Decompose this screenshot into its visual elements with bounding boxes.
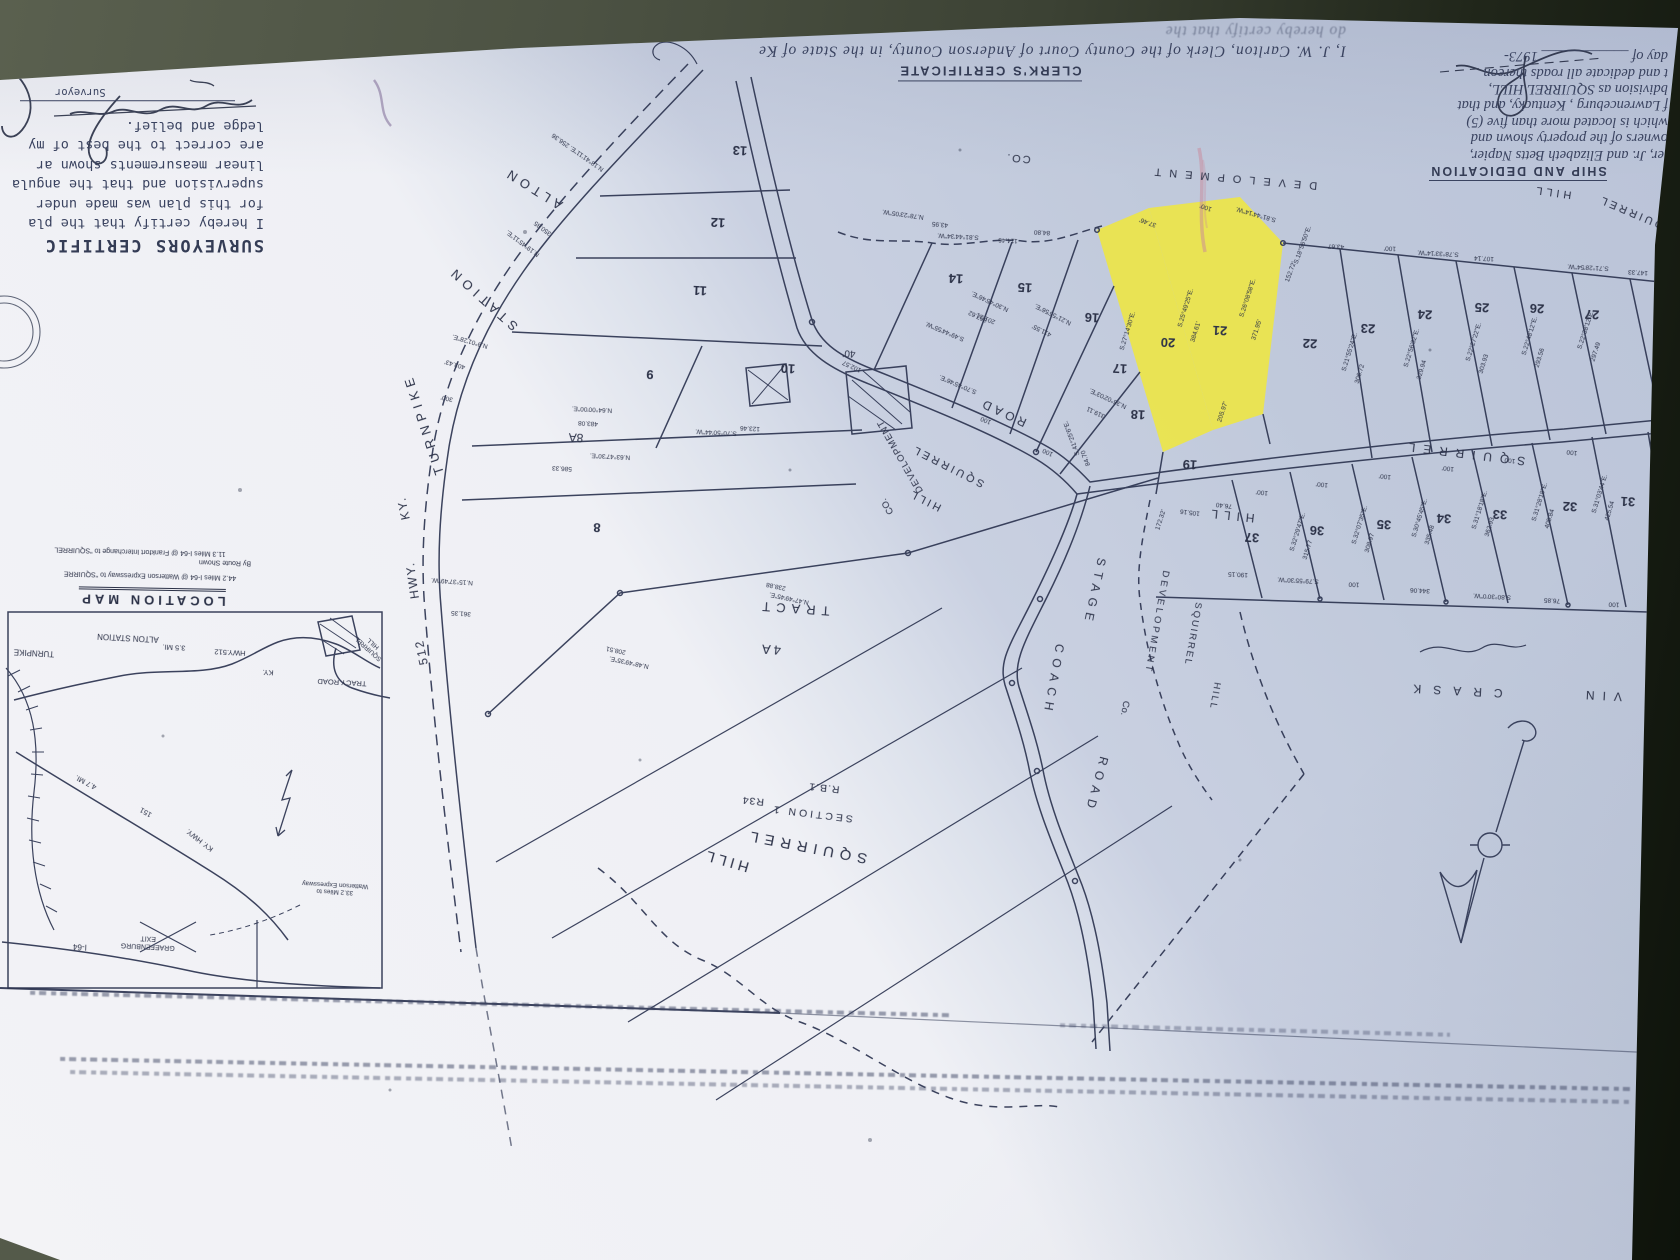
ownership-dedication-certificate: SHIP AND DEDICATION ler, Jr. and Elizabe…: [1368, 36, 1668, 181]
inset-label: By Route Shown: [199, 557, 251, 566]
clerks-certificate-heading: CLERK'S CERTIFICATE: [898, 62, 1081, 82]
signature-line: [20, 99, 235, 101]
certificate-line: supervision and that the angula: [0, 174, 264, 194]
surveyors-certificate-heading: SURVEYORS CERTIFIC: [0, 233, 264, 258]
inset-label: KY. HWY.: [185, 827, 215, 853]
inset-label: 151: [139, 805, 154, 818]
certificate-line: do hereby certify that the: [634, 20, 1346, 40]
certificate-line: bdivision as SQUIRREL HILL,: [1368, 81, 1668, 97]
certificate-line: ler, Jr. and Elizabeth Betts Napier,: [1368, 146, 1668, 162]
inset-label: 4.7 MI.: [74, 773, 98, 791]
dedication-body: ler, Jr. and Elizabeth Betts Napier,owne…: [1368, 64, 1668, 162]
inset-label: 3.5 MI.: [162, 642, 185, 651]
certificate-line: are correct to the best of my: [0, 135, 264, 155]
location-map-title: LOCATION MAP: [78, 586, 226, 608]
inset-label: SQUIRREL HILL: [354, 630, 388, 663]
photo-of-plat-map: ALTONSTATIONTURNPIKEKY.HWY.512ROADSQUIRR…: [0, 0, 1680, 1260]
clerks-certificate: CLERK'S CERTIFICATE I, J. W. Carlton, Cl…: [634, 20, 1346, 81]
inset-label: I-64: [73, 941, 87, 951]
paper-sheet: ALTONSTATIONTURNPIKEKY.HWY.512ROADSQUIRR…: [0, 0, 1680, 1260]
certificate-line: linear measurements shown ar: [0, 154, 264, 174]
certificate-line: f Lawrenceburg , Kentucky, and that: [1368, 97, 1668, 113]
dedication-heading: SHIP AND DEDICATION: [1429, 164, 1606, 181]
certificate-line: t and dedicate all roads thereon: [1368, 64, 1668, 80]
inset-label: GRAEFENBURG EXIT: [121, 933, 176, 951]
surveyors-certificate-body: I hereby certify that the plafor this pl…: [0, 115, 264, 232]
surveyor-signature-label: Surveyor: [0, 84, 264, 99]
inset-label: 33.2 Miles to Watterson Expressway: [302, 879, 369, 897]
certificate-line: ledge and belief.: [0, 115, 264, 135]
inset-label: ALTON STATION: [97, 631, 159, 643]
bearing-label: 214.94: [1650, 604, 1670, 612]
surveyors-certificate: SURVEYORS CERTIFIC I hereby certify that…: [0, 84, 264, 263]
certificate-line: for this plan was made under: [0, 193, 264, 213]
certificate-line: I hereby certify that the pla: [0, 213, 264, 233]
inset-label: 11.3 Miles I-64 @ Frankfort Interchange …: [54, 545, 225, 557]
clerks-certificate-body: I, J. W. Carlton, Clerk of the County Co…: [634, 20, 1346, 60]
inset-label: KY.: [262, 668, 274, 677]
inset-label: TURNPIKE: [14, 647, 55, 658]
certificate-line: owners of the property shown and: [1368, 130, 1668, 146]
inset-label: HWY.512: [214, 647, 246, 657]
dedication-date-line: day of ____________ 1973-: [1368, 48, 1668, 64]
certificate-line: which is located more than five (5): [1368, 114, 1668, 130]
inset-label: TRACY ROAD: [317, 677, 366, 688]
inset-label: 44.2 Miles I-64 @ Watterson Expressway t…: [64, 569, 236, 581]
certificate-line: I, J. W. Carlton, Clerk of the County Co…: [634, 40, 1346, 60]
